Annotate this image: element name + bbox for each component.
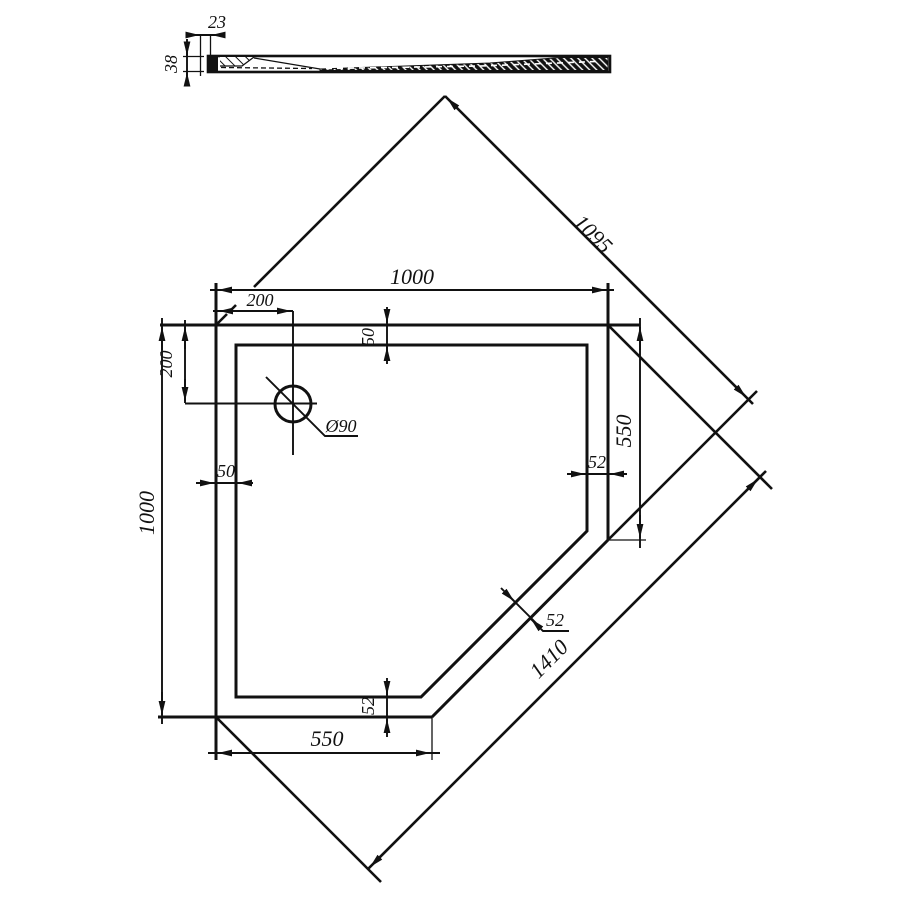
arrow [505, 592, 514, 601]
ext-diag-c [608, 325, 772, 489]
dim-wall-bottom: 52 [358, 678, 387, 737]
dim-label-550-bottom: 550 [311, 726, 344, 751]
dim-wall-chamfer: 52 [501, 588, 569, 631]
profile-section-view: 23 38 [161, 12, 610, 83]
dim-label-1095: 1095 [569, 209, 618, 258]
dim-drain-offset-v: 200 [156, 320, 185, 403]
dim-label-200-h: 200 [247, 290, 274, 310]
dim-label-50-left: 50 [217, 461, 235, 481]
profile-left-rim-section [208, 56, 218, 72]
dim-wall-top: 50 [358, 307, 387, 364]
plan-view: Ø90 1095 1410 1000 [134, 96, 772, 882]
dim-label-200-v: 200 [156, 351, 176, 378]
dim-bottom-edge: 550 [208, 726, 440, 753]
dim-label-52-right: 52 [588, 452, 606, 472]
dim-profile-height: 38 [161, 39, 204, 83]
dim-label-52-bottom: 52 [358, 697, 378, 715]
dim-drain-offset-h: 200 [213, 290, 293, 311]
tray-outer-contour [158, 283, 646, 760]
dim-line-1410 [368, 471, 766, 869]
dim-label-1410: 1410 [524, 634, 573, 683]
dim-label-550-right: 550 [611, 415, 636, 448]
dim-label-38: 38 [161, 55, 181, 74]
arrow [746, 479, 758, 491]
arrow [370, 855, 382, 867]
profile-hidden-line [221, 68, 312, 69]
arrow [734, 385, 746, 397]
diagonal-dimensions: 1095 1410 [216, 96, 772, 882]
dim-left-height: 1000 [134, 318, 162, 724]
ext-diag-a2 [231, 305, 236, 310]
outer-chamfer-edge [432, 540, 608, 717]
ext-diag-b [608, 391, 757, 540]
dim-label-1000-left: 1000 [134, 491, 159, 535]
technical-drawing-page: 23 38 Ø9 [0, 0, 900, 900]
drain: Ø90 [185, 311, 358, 455]
ext-diag-a1 [216, 314, 227, 325]
ext-diag-a3 [254, 96, 445, 287]
dim-wall-left: 50 [196, 461, 253, 483]
dim-label-1000-top: 1000 [390, 264, 434, 289]
dim-label-d90: Ø90 [325, 416, 357, 436]
dim-label-52-chamfer: 52 [546, 610, 564, 630]
dim-label-50-top: 50 [358, 328, 378, 346]
dim-label-23: 23 [208, 12, 226, 32]
ext-diag-d [216, 717, 381, 882]
arrow [447, 98, 459, 110]
dim-top-width: 1000 [210, 264, 614, 290]
shower-tray-drawing: 23 38 Ø9 [0, 0, 900, 900]
tray-inner-contour [236, 345, 587, 697]
dim-wall-right: 52 [567, 452, 627, 474]
